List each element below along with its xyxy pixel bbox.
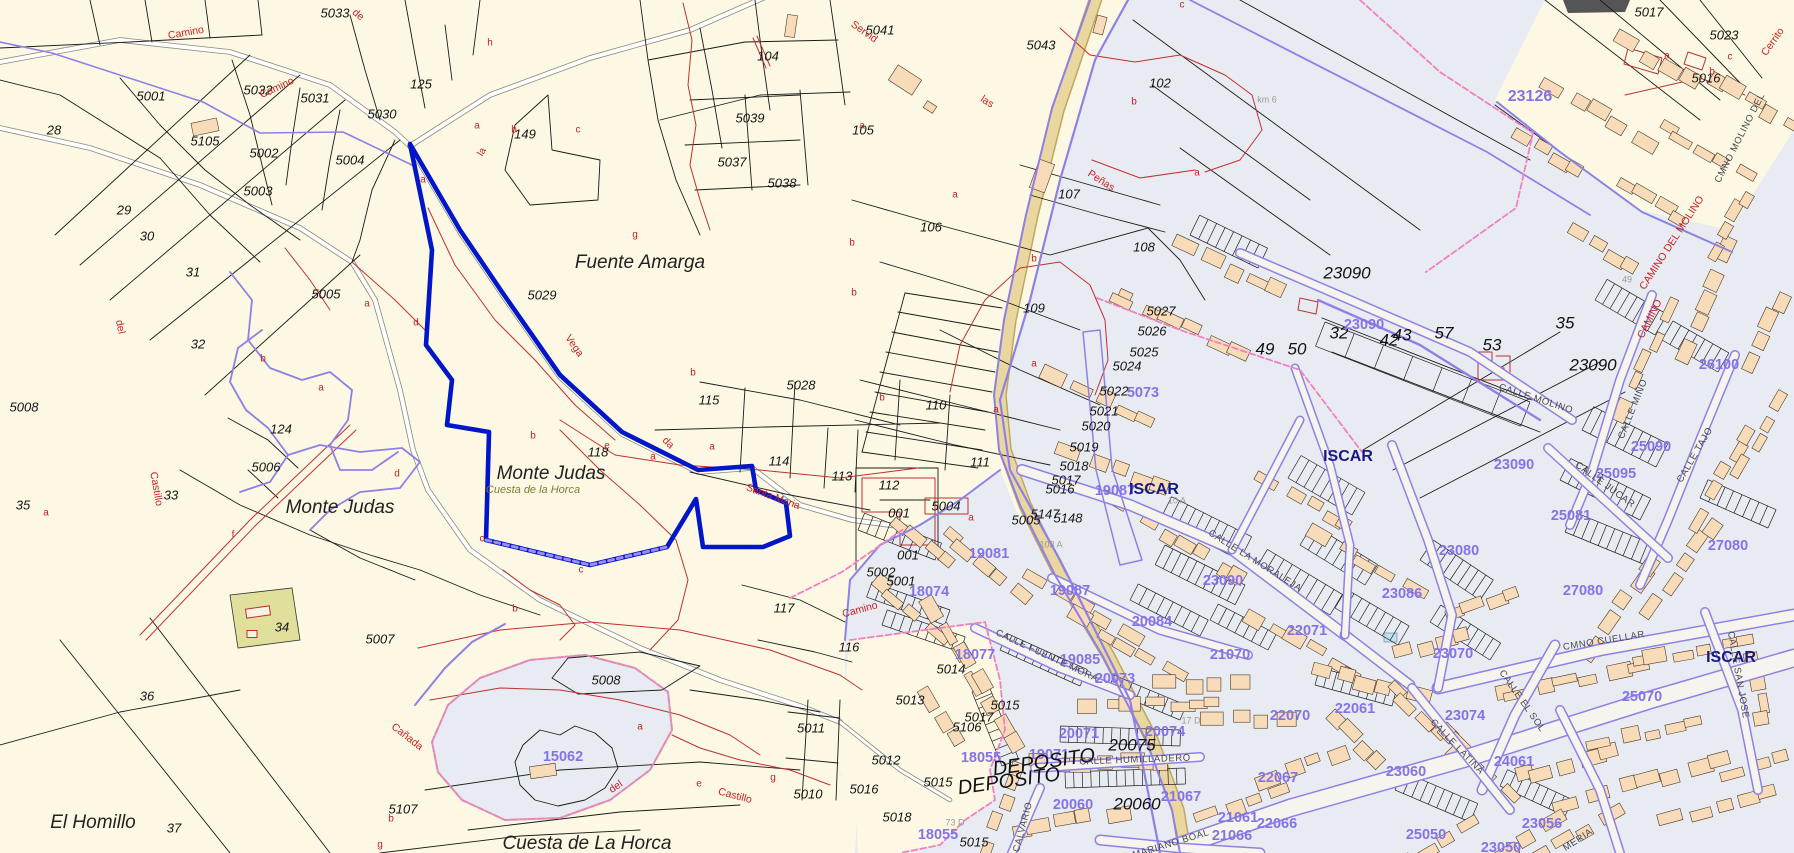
map-label: 22066: [1257, 816, 1297, 832]
map-label: 23090: [1494, 457, 1534, 473]
map-label: 5006: [252, 459, 282, 474]
map-label: b: [1709, 67, 1715, 78]
map-label: 112: [879, 477, 900, 492]
map-label: 35: [1556, 313, 1575, 332]
map-label: 19087: [1050, 583, 1090, 599]
map-label: 111: [970, 454, 990, 469]
map-label: b: [879, 393, 885, 404]
map-label: 5010: [794, 786, 824, 801]
map-label: g: [377, 840, 383, 851]
map-label: c: [480, 534, 485, 545]
map-label: 23090: [1322, 263, 1371, 282]
map-label: 23090: [1568, 355, 1617, 374]
map-label: 5018: [883, 809, 913, 824]
map-label: 5148: [1054, 510, 1084, 525]
map-label: Cuesta de La Horca: [503, 833, 672, 853]
map-label: 15062: [543, 749, 583, 765]
map-label: 23080: [1439, 543, 1479, 559]
map-label: b: [512, 604, 518, 615]
map-label: h: [487, 38, 493, 49]
map-label: b: [530, 431, 536, 442]
map-label: c: [1180, 0, 1185, 11]
map-label: a: [43, 508, 49, 519]
map-label: 5008: [10, 399, 40, 414]
map-label: 33: [164, 487, 179, 502]
map-label: 5004: [932, 498, 961, 513]
map-label: 25050: [1406, 827, 1446, 843]
map-label: a: [364, 299, 370, 310]
map-label: b: [260, 354, 266, 365]
map-label: 22071: [1287, 623, 1327, 639]
map-label: 5043: [1027, 37, 1057, 52]
map-label: 18074: [909, 584, 949, 600]
map-label: 5105: [191, 133, 221, 148]
map-label: c: [576, 125, 581, 136]
map-label: 50: [1288, 339, 1307, 358]
map-label: 23086: [1382, 586, 1422, 602]
map-label: 5023: [1710, 27, 1740, 42]
map-label: 28: [46, 122, 62, 137]
map-label: 19081: [969, 546, 1009, 562]
map-label: 20084: [1132, 614, 1172, 630]
map-label: 10 A: [1168, 495, 1186, 505]
map-label: Monte Judas: [286, 497, 395, 518]
map-label: b: [388, 814, 394, 825]
map-label: g: [632, 230, 638, 241]
map-label: 18077: [955, 647, 995, 663]
map-label: 5019: [1070, 439, 1099, 454]
map-label: 5003: [244, 183, 274, 198]
map-label: b: [1131, 97, 1137, 108]
map-label: c: [1728, 52, 1733, 63]
map-label: 22070: [1270, 708, 1310, 724]
map-label: Cuesta de la Horca: [486, 484, 580, 496]
map-label: d: [394, 469, 400, 480]
map-label: 5005: [312, 286, 342, 301]
map-label: 5026: [1138, 323, 1168, 338]
map-label: 5016: [1692, 70, 1722, 85]
map-label: 115: [699, 392, 720, 407]
map-label: 32: [191, 336, 206, 351]
map-label: 36: [140, 688, 155, 703]
map-label: 21067: [1161, 789, 1201, 805]
map-label: Fuente Amarga: [575, 252, 705, 273]
map-label: 73 D: [945, 817, 965, 827]
map-label: a: [968, 513, 974, 524]
map-label: 5014: [937, 661, 966, 676]
map-label: Monte Judas: [497, 463, 606, 484]
map-label: 49: [1256, 339, 1275, 358]
map-label: b: [1031, 254, 1037, 265]
map-label: 20060: [1112, 794, 1161, 813]
map-label: 5031: [301, 90, 330, 105]
map-label: b: [851, 288, 857, 299]
map-label: 37: [167, 820, 182, 835]
map-label: 5039: [736, 110, 765, 125]
map-label: 23060: [1386, 764, 1426, 780]
map-label: 34: [275, 619, 289, 634]
map-label: 5016: [1046, 481, 1076, 496]
map-label: 5015: [924, 774, 954, 789]
map-label: 5011: [797, 720, 825, 735]
map-label: 102: [1149, 75, 1171, 90]
map-label: a: [420, 175, 426, 186]
map-label: a: [318, 383, 324, 394]
map-label: f: [232, 530, 235, 541]
map-label: 149: [514, 126, 536, 141]
map-label: 5033: [321, 5, 351, 20]
map-label: 5015: [991, 697, 1021, 712]
map-label: 25081: [1551, 508, 1591, 524]
map-label: 001: [897, 547, 919, 562]
map-label: 5013: [896, 692, 926, 707]
map-label: a: [474, 121, 480, 132]
map-label: 22061: [1335, 701, 1375, 717]
map-label: 53: [1483, 335, 1502, 354]
map-label: a: [709, 442, 715, 453]
map-label: 24061: [1494, 754, 1534, 770]
map-label: 31: [186, 264, 200, 279]
map-label: 5008: [592, 672, 622, 687]
map-label: 117: [774, 600, 795, 615]
map-label: a: [1031, 359, 1037, 370]
map-label: 5018: [1060, 458, 1090, 473]
map-label: 18055: [918, 827, 958, 843]
map-label: 5029: [528, 287, 557, 302]
map-label: 5007: [366, 631, 396, 646]
map-label: b: [511, 125, 517, 136]
map-label: 5030: [368, 106, 398, 121]
map-label: 20074: [1145, 724, 1185, 740]
map-label: a: [859, 121, 865, 132]
map-label: 5106: [953, 719, 983, 734]
map-label: 001: [888, 505, 910, 520]
map-label: 25070: [1622, 689, 1662, 705]
map-label: 116: [839, 639, 860, 654]
map-label: 5001: [137, 88, 166, 103]
map-label: 23090: [1203, 573, 1243, 589]
map-label: 20073: [1095, 671, 1135, 687]
map-label: 5028: [787, 377, 817, 392]
map-label: 43: [1393, 325, 1412, 344]
map-label: 49: [1622, 274, 1632, 284]
map-label: a: [952, 190, 958, 201]
map-label: 5022: [1100, 383, 1130, 398]
map-label: 17 D: [1181, 715, 1201, 725]
map-label: 114: [769, 453, 790, 468]
map-label: 5021: [1090, 403, 1119, 418]
map-label: 110: [926, 397, 947, 412]
map-label: e: [696, 779, 702, 790]
map-label: 5025: [1130, 344, 1160, 359]
map-label: 108: [1133, 239, 1155, 254]
map-label: 124: [270, 421, 292, 436]
map-label: a: [1194, 168, 1200, 179]
map-label: 5020: [1082, 418, 1112, 433]
map-label: 23126: [1508, 88, 1553, 105]
map-label: 5017: [1635, 4, 1665, 19]
cadastral-map-viewport[interactable]: 5033503150321255030500128510550025004500…: [0, 0, 1794, 853]
map-label: 107: [1058, 186, 1080, 201]
map-label: 23090: [1344, 317, 1384, 333]
map-label: 35: [16, 497, 31, 512]
map-label: 5024: [1113, 358, 1142, 373]
map-label: b: [849, 238, 855, 249]
map-label: 30: [140, 228, 155, 243]
map-label: 104: [757, 48, 779, 63]
map-label: 5012: [872, 752, 902, 767]
map-label: a: [993, 405, 999, 416]
map-label: 23056: [1522, 816, 1562, 832]
map-label: 125: [410, 76, 432, 91]
map-label: d: [413, 318, 419, 329]
map-label: 103 A: [1039, 539, 1062, 549]
map-label: 20060: [1053, 797, 1093, 813]
map-label: El Homillo: [50, 812, 136, 833]
map-label: 57: [1435, 323, 1454, 342]
map-label: 21061: [1218, 810, 1258, 826]
map-label: a: [637, 722, 643, 733]
cadastral-map[interactable]: 5033503150321255030500128510550025004500…: [0, 0, 1794, 853]
map-label: 27080: [1708, 538, 1748, 554]
map-label: 113: [832, 468, 853, 483]
map-label: 20071: [1059, 726, 1099, 742]
map-label: 5073: [1127, 385, 1159, 401]
map-label: a: [650, 452, 656, 463]
map-label: a: [1664, 51, 1670, 62]
map-label: 109: [1023, 300, 1045, 315]
map-label: 21066: [1212, 828, 1252, 844]
map-label: ISCAR: [1323, 448, 1373, 465]
map-label: 106: [920, 219, 942, 234]
map-label: 5004: [336, 152, 365, 167]
map-label: 29: [116, 202, 131, 217]
map-label: 23070: [1433, 646, 1473, 662]
map-label: 5027: [1147, 303, 1177, 318]
map-label: 21070: [1210, 647, 1250, 663]
map-label: 5037: [718, 154, 748, 169]
map-label: b: [690, 368, 696, 379]
map-label: 26100: [1699, 357, 1739, 373]
map-label: km 6: [1257, 94, 1277, 104]
map-label: 22067: [1258, 770, 1298, 786]
map-label: 5002: [250, 145, 280, 160]
map-label: 25090: [1631, 439, 1671, 455]
map-label: 5038: [768, 175, 798, 190]
map-label: 5016: [850, 781, 880, 796]
map-label: 27080: [1563, 583, 1603, 599]
map-label: c: [579, 565, 584, 576]
map-label: 23074: [1445, 708, 1485, 724]
map-label: 5015: [960, 834, 990, 849]
map-label: g: [770, 773, 776, 784]
map-label: e: [604, 441, 610, 452]
map-label: 23050: [1481, 840, 1521, 853]
